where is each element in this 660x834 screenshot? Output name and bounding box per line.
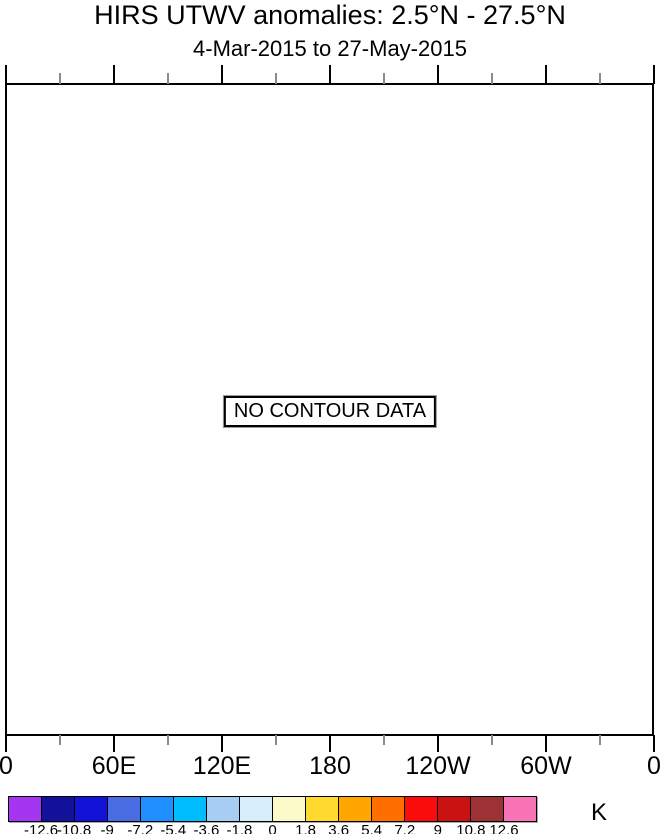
x-axis-tick-label: 120W (405, 754, 470, 779)
colorbar-boundary-label: 3.6 (328, 823, 349, 834)
major-tick-top (545, 65, 548, 84)
minor-tick-bottom (59, 735, 61, 745)
minor-tick-top (59, 73, 61, 84)
major-tick-top (437, 65, 440, 84)
colorbar-cell (173, 797, 206, 821)
colorbar-boundary-label: -1.8 (227, 823, 253, 834)
major-tick-top (113, 65, 116, 84)
colorbar-cell (371, 797, 404, 821)
colorbar-boundary-label: 7.2 (394, 823, 415, 834)
colorbar-cell (305, 797, 338, 821)
colorbar-cell (272, 797, 305, 821)
minor-tick-bottom (167, 735, 169, 745)
colorbar-boundary-label: 12.6 (489, 823, 518, 834)
colorbar-cell (437, 797, 470, 821)
colorbar-boundary-label: 1.8 (295, 823, 316, 834)
major-tick-bottom (437, 735, 440, 752)
minor-tick-top (167, 73, 169, 84)
colorbar-boundary-label: -9 (101, 823, 114, 834)
no-contour-data-label: NO CONTOUR DATA (234, 400, 426, 422)
colorbar-boundary-label: -5.4 (160, 823, 186, 834)
minor-tick-top (599, 73, 601, 84)
major-tick-top (653, 65, 656, 84)
colorbar (8, 796, 537, 822)
plot-canvas: HIRS UTWV anomalies: 2.5°N - 27.5°N 4-Ma… (0, 0, 660, 834)
minor-tick-top (275, 73, 277, 84)
x-axis-tick-label: 180 (309, 754, 351, 779)
colorbar-boundary-label: -12.6 (24, 823, 58, 834)
x-axis-tick-label: 0 (647, 754, 660, 779)
colorbar-boundary-label: 10.8 (456, 823, 485, 834)
no-contour-data-box: NO CONTOUR DATA (224, 396, 436, 427)
colorbar-boundary-label: 5.4 (361, 823, 382, 834)
colorbar-cell (9, 797, 41, 821)
colorbar-cell (206, 797, 239, 821)
minor-tick-bottom (599, 735, 601, 745)
colorbar-boundary-label: 0 (268, 823, 276, 834)
major-tick-bottom (221, 735, 224, 752)
major-tick-top (221, 65, 224, 84)
colorbar-boundary-label: -10.8 (57, 823, 91, 834)
plot-subtitle: 4-Mar-2015 to 27-May-2015 (0, 37, 660, 61)
colorbar-cell (338, 797, 371, 821)
minor-tick-bottom (275, 735, 277, 745)
x-axis-tick-label: 0 (0, 754, 13, 779)
colorbar-cell (107, 797, 140, 821)
x-axis-tick-label: 120E (193, 754, 251, 779)
colorbar-cell (74, 797, 107, 821)
colorbar-boundary-label: -7.2 (127, 823, 153, 834)
minor-tick-top (491, 73, 493, 84)
x-axis-tick-label: 60W (520, 754, 571, 779)
colorbar-cell (404, 797, 437, 821)
major-tick-bottom (653, 735, 656, 752)
major-tick-bottom (545, 735, 548, 752)
colorbar-cell (470, 797, 503, 821)
colorbar-cell (140, 797, 173, 821)
minor-tick-top (383, 73, 385, 84)
colorbar-boundary-label: 9 (434, 823, 442, 834)
minor-tick-bottom (491, 735, 493, 745)
major-tick-top (329, 65, 332, 84)
colorbar-cell (239, 797, 272, 821)
colorbar-cell (503, 797, 536, 821)
colorbar-boundary-label: -3.6 (193, 823, 219, 834)
major-tick-bottom (113, 735, 116, 752)
x-axis-tick-label: 60E (92, 754, 136, 779)
colorbar-unit-label: K (591, 801, 607, 825)
major-tick-top (5, 65, 8, 84)
major-tick-bottom (329, 735, 332, 752)
major-tick-bottom (5, 735, 8, 752)
plot-title: HIRS UTWV anomalies: 2.5°N - 27.5°N (0, 1, 660, 31)
minor-tick-bottom (383, 735, 385, 745)
colorbar-cell (41, 797, 74, 821)
